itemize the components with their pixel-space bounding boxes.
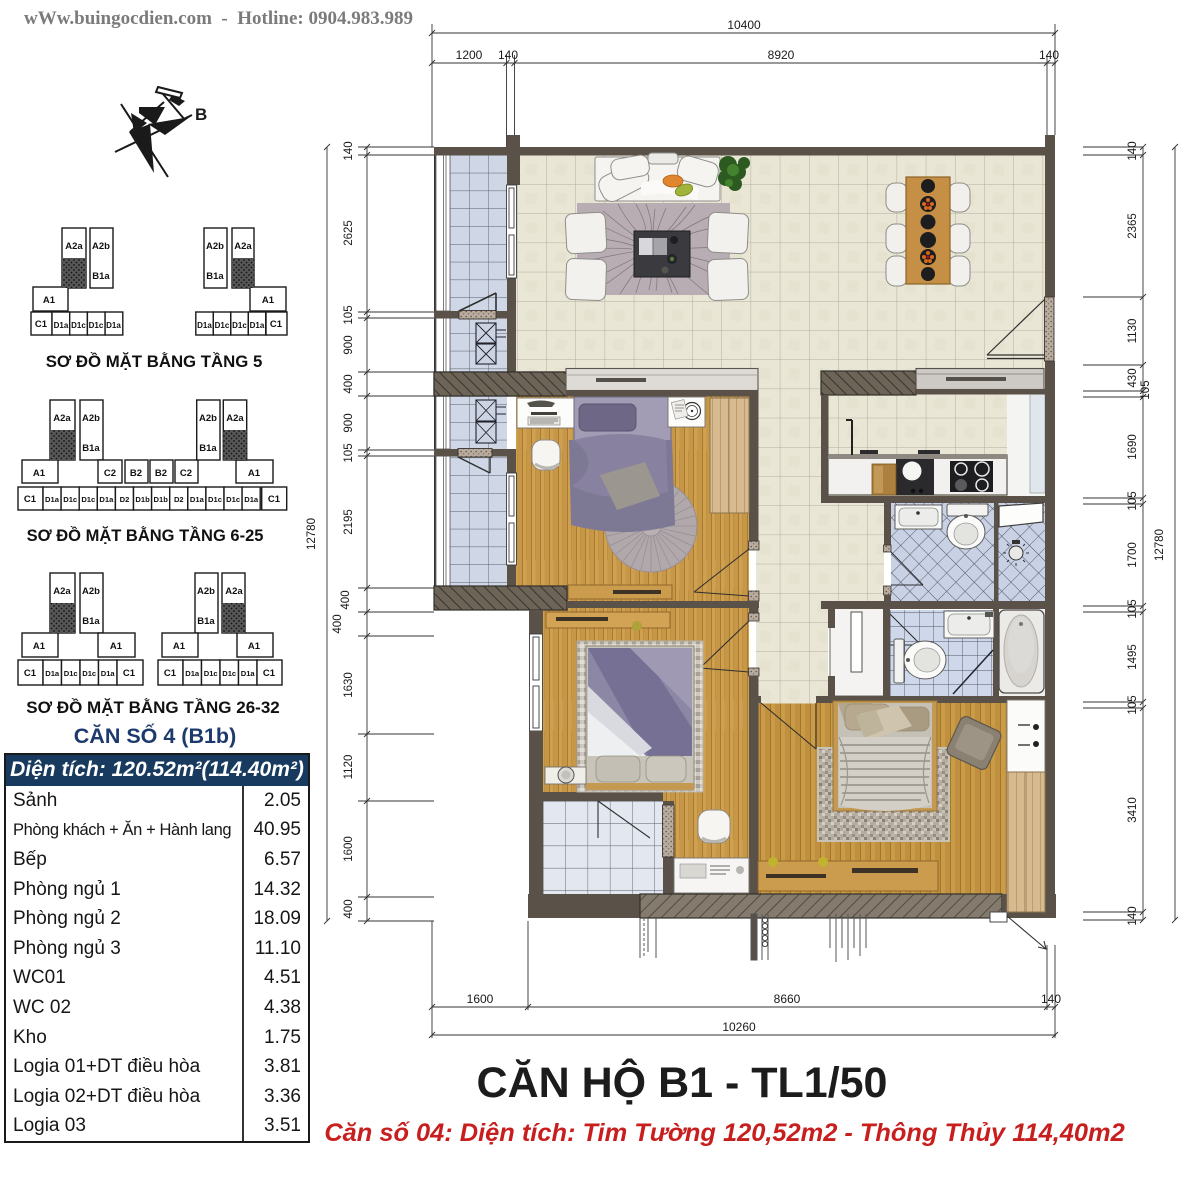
svg-text:B1a: B1a — [206, 271, 224, 282]
svg-text:A1: A1 — [43, 295, 56, 306]
svg-text:C1: C1 — [268, 494, 281, 505]
svg-text:D1c: D1c — [215, 321, 230, 330]
svg-text:B2: B2 — [155, 468, 167, 479]
svg-text:SƠ ĐỒ MẶT BẰNG TẦNG 5: SƠ ĐỒ MẶT BẰNG TẦNG 5 — [46, 352, 263, 371]
svg-text:430: 430 — [1127, 368, 1139, 387]
svg-text:C1: C1 — [263, 668, 276, 679]
svg-text:B1a: B1a — [82, 443, 100, 454]
svg-text:A2a: A2a — [226, 413, 244, 424]
svg-text:D1c: D1c — [222, 669, 236, 678]
svg-text:A2b: A2b — [82, 413, 100, 424]
svg-text:D1c: D1c — [64, 669, 78, 678]
svg-text:B2: B2 — [130, 468, 142, 479]
svg-text:1495: 1495 — [1127, 644, 1139, 670]
svg-text:900: 900 — [343, 413, 355, 432]
svg-text:Căn số 04: Diện tích: Tim Tườn: Căn số 04: Diện tích: Tim Tường 120,52m2… — [324, 1119, 1124, 1147]
svg-text:SƠ ĐỒ MẶT BẰNG TẦNG 6-25: SƠ ĐỒ MẶT BẰNG TẦNG 6-25 — [27, 526, 264, 545]
svg-text:A2b: A2b — [206, 241, 224, 252]
svg-text:105: 105 — [1127, 695, 1139, 714]
svg-text:D1c: D1c — [208, 495, 222, 504]
svg-text:8660: 8660 — [774, 992, 801, 1006]
svg-text:D1a: D1a — [185, 669, 200, 678]
svg-text:12780: 12780 — [1154, 529, 1166, 561]
svg-text:A2b: A2b — [197, 586, 215, 597]
svg-text:D1a: D1a — [99, 495, 114, 504]
svg-text:1200: 1200 — [456, 48, 483, 62]
svg-text:140: 140 — [498, 48, 518, 62]
svg-text:400: 400 — [332, 614, 344, 633]
svg-text:C1: C1 — [270, 319, 283, 330]
svg-text:D1c: D1c — [226, 495, 240, 504]
svg-text:105: 105 — [343, 443, 355, 462]
svg-text:105: 105 — [1127, 491, 1139, 510]
svg-text:1120: 1120 — [343, 755, 355, 780]
svg-text:C1: C1 — [123, 668, 136, 679]
svg-text:1630: 1630 — [343, 672, 355, 698]
svg-text:D1a: D1a — [244, 495, 259, 504]
svg-text:D1a: D1a — [45, 495, 60, 504]
svg-text:C1: C1 — [24, 668, 37, 679]
svg-text:D1a: D1a — [54, 321, 69, 330]
svg-text:D1c: D1c — [82, 669, 96, 678]
svg-text:D1c: D1c — [89, 321, 104, 330]
svg-text:A1: A1 — [33, 641, 46, 652]
svg-text:SƠ ĐỒ MẶT BẰNG TẦNG 26-32: SƠ ĐỒ MẶT BẰNG TẦNG 26-32 — [26, 698, 279, 717]
svg-text:D1b: D1b — [135, 495, 150, 504]
svg-text:B: B — [195, 105, 207, 124]
svg-text:B1a: B1a — [92, 271, 110, 282]
svg-text:A2a: A2a — [225, 586, 243, 597]
svg-text:10400: 10400 — [727, 18, 761, 32]
svg-text:1690: 1690 — [1127, 434, 1139, 460]
svg-text:B1a: B1a — [199, 443, 217, 454]
svg-text:8920: 8920 — [768, 48, 795, 62]
svg-text:CĂN HỘ B1 - TL1/50: CĂN HỘ B1 - TL1/50 — [477, 1058, 888, 1107]
svg-text:A1: A1 — [173, 641, 186, 652]
svg-text:2195: 2195 — [343, 509, 355, 535]
svg-text:400: 400 — [343, 374, 355, 393]
svg-text:D1a: D1a — [106, 321, 121, 330]
svg-text:1600: 1600 — [343, 836, 355, 862]
svg-text:400: 400 — [340, 590, 352, 609]
svg-text:C1: C1 — [35, 319, 48, 330]
svg-text:1130: 1130 — [1127, 319, 1139, 344]
svg-text:10260: 10260 — [722, 1020, 756, 1034]
svg-text:D1a: D1a — [45, 669, 60, 678]
svg-text:A2a: A2a — [234, 241, 252, 252]
svg-text:105: 105 — [343, 305, 355, 324]
svg-text:A2a: A2a — [65, 241, 83, 252]
svg-text:D1a: D1a — [250, 321, 265, 330]
svg-text:A1: A1 — [248, 641, 261, 652]
svg-text:D2: D2 — [174, 495, 184, 504]
svg-text:B1a: B1a — [82, 616, 100, 627]
svg-text:B1a: B1a — [197, 616, 215, 627]
svg-text:400: 400 — [343, 899, 355, 918]
svg-text:D1c: D1c — [232, 321, 247, 330]
svg-text:A1: A1 — [262, 295, 275, 306]
svg-text:A1: A1 — [110, 641, 123, 652]
svg-text:140: 140 — [1127, 141, 1139, 160]
svg-text:A2b: A2b — [82, 586, 100, 597]
svg-text:A2b: A2b — [92, 241, 110, 252]
svg-text:A2b: A2b — [199, 413, 217, 424]
svg-text:C2: C2 — [104, 468, 116, 479]
svg-text:1700: 1700 — [1127, 542, 1139, 568]
svg-text:105: 105 — [1127, 599, 1139, 618]
svg-text:140: 140 — [1039, 48, 1059, 62]
svg-text:D1a: D1a — [190, 495, 205, 504]
svg-text:A2a: A2a — [53, 413, 71, 424]
svg-text:105: 105 — [1140, 380, 1152, 399]
svg-text:140: 140 — [1041, 992, 1061, 1006]
svg-text:A2a: A2a — [53, 586, 71, 597]
svg-text:C1: C1 — [24, 494, 37, 505]
svg-text:A1: A1 — [33, 468, 46, 479]
svg-text:2365: 2365 — [1127, 213, 1139, 239]
svg-text:C1: C1 — [164, 668, 177, 679]
svg-text:140: 140 — [1127, 906, 1139, 925]
svg-text:D1b: D1b — [154, 495, 169, 504]
svg-text:D1a: D1a — [101, 669, 116, 678]
svg-text:D2: D2 — [120, 495, 130, 504]
svg-text:CĂN SỐ 4 (B1b): CĂN SỐ 4 (B1b) — [74, 722, 236, 748]
svg-text:D1a: D1a — [197, 321, 212, 330]
svg-text:D1c: D1c — [63, 495, 77, 504]
svg-text:D1c: D1c — [204, 669, 218, 678]
svg-text:2625: 2625 — [343, 220, 355, 246]
svg-text:D1a: D1a — [241, 669, 256, 678]
svg-text:900: 900 — [343, 335, 355, 354]
svg-text:A1: A1 — [248, 468, 261, 479]
svg-text:D1c: D1c — [81, 495, 95, 504]
svg-text:3410: 3410 — [1127, 797, 1139, 823]
svg-text:C2: C2 — [180, 468, 192, 479]
svg-text:D1c: D1c — [71, 321, 86, 330]
svg-text:1600: 1600 — [467, 992, 494, 1006]
svg-text:140: 140 — [343, 141, 355, 160]
